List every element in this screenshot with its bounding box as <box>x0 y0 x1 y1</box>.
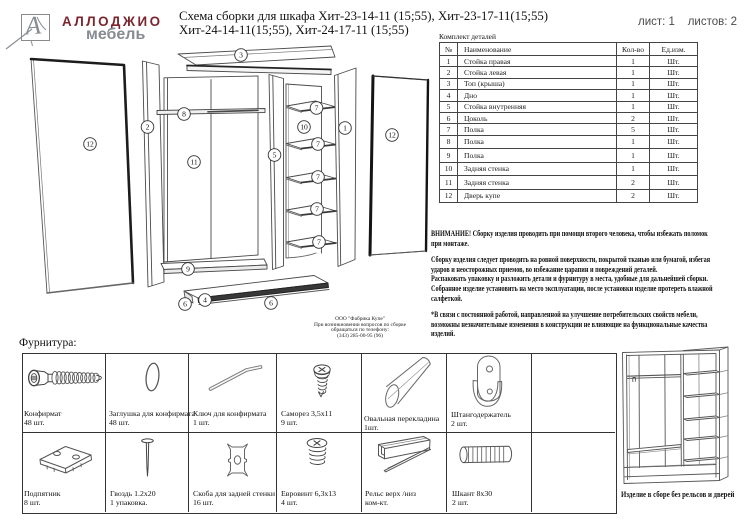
svg-text:12: 12 <box>388 131 396 140</box>
svg-text:4: 4 <box>203 296 207 305</box>
svg-text:5: 5 <box>273 151 277 160</box>
svg-text:10: 10 <box>300 123 308 132</box>
svg-text:7: 7 <box>316 173 320 182</box>
svg-text:3: 3 <box>239 51 243 60</box>
svg-text:7: 7 <box>317 238 321 247</box>
svg-text:9: 9 <box>186 265 190 274</box>
svg-text:6: 6 <box>183 300 187 309</box>
svg-text:6: 6 <box>269 299 273 308</box>
svg-text:1: 1 <box>343 124 347 133</box>
svg-text:7: 7 <box>315 205 319 214</box>
svg-text:12: 12 <box>86 140 94 149</box>
svg-text:7: 7 <box>315 104 319 113</box>
svg-text:2: 2 <box>146 123 150 132</box>
svg-text:7: 7 <box>316 140 320 149</box>
svg-text:11: 11 <box>190 158 198 167</box>
svg-text:8: 8 <box>182 110 186 119</box>
